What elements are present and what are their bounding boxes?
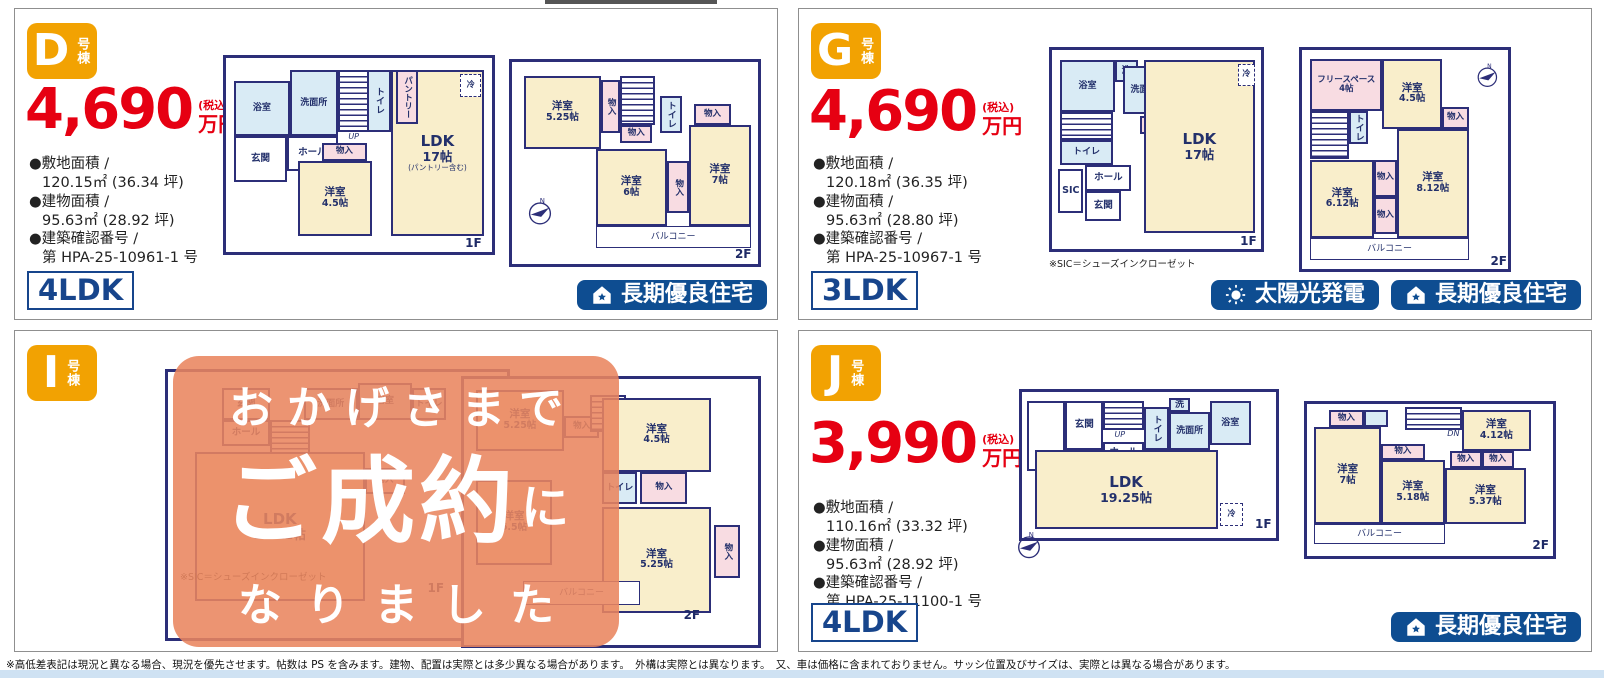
price-amount: 4,690 bbox=[25, 85, 192, 135]
room-appliance: 冷 bbox=[1238, 64, 1255, 86]
floorplan-2f: 洋室5.25帖物入DN物入トイレ物入洋室6帖物入洋室7帖バルコニーN2F bbox=[509, 59, 761, 267]
room-hall: 玄関 bbox=[1085, 191, 1121, 221]
panel-unit-g: G 号棟 4,690 (税込) 万円 ●敷地面積 / 120.18㎡ (36.3… bbox=[798, 8, 1592, 320]
room-room: 洋室5.18帖 bbox=[1381, 460, 1445, 524]
room-balcony: バルコニー bbox=[596, 226, 751, 248]
floorplan-1f: 浴室洗洗面所UPトイレ物入ホールSIC玄関LDK17帖冷1F bbox=[1049, 47, 1264, 252]
sold-overlay: おかげさまで ご成約 に なりました bbox=[173, 356, 619, 647]
unit-suffix: 号棟 bbox=[856, 37, 875, 65]
house-star-icon bbox=[1405, 284, 1427, 306]
room-stairs bbox=[1310, 111, 1349, 159]
room-wet: 洗面所 bbox=[290, 70, 338, 136]
floor-label: 1F bbox=[1238, 235, 1259, 249]
panel-unit-d: D 号棟 4,690 (税込) 万円 ●敷地面積 / 120.15㎡ (36.3… bbox=[14, 8, 778, 320]
spec-label: ●建物面積 / bbox=[29, 193, 198, 212]
room-room: 洋室6.12帖 bbox=[1310, 160, 1374, 239]
price-unit: 万円 bbox=[982, 115, 1022, 137]
room-appliance: 冷 bbox=[1220, 503, 1243, 526]
room-closet: 物入 bbox=[1329, 410, 1363, 427]
price: 4,690 (税込) 万円 bbox=[25, 85, 238, 135]
unit-badge-g: G 号棟 bbox=[811, 23, 881, 79]
room-stairs bbox=[1060, 112, 1112, 140]
spec-label: ●建築確認番号 / bbox=[813, 574, 982, 593]
unit-badge-i: I 号棟 bbox=[27, 345, 97, 401]
floor-label: 1F bbox=[1253, 518, 1273, 533]
unit-badge-j: J 号棟 bbox=[811, 345, 881, 401]
room-closet: 物入 bbox=[1381, 444, 1425, 461]
room-closet: 物入 bbox=[1450, 451, 1482, 468]
room-stairs bbox=[1103, 401, 1144, 430]
unit-suffix: 号棟 bbox=[62, 359, 81, 387]
room-room-lg: LDK17帖 bbox=[1144, 60, 1255, 233]
room-room: 洋室4.5帖 bbox=[298, 161, 372, 237]
spec-label: ●敷地面積 / bbox=[813, 155, 982, 174]
room-wet: 浴室 bbox=[234, 81, 290, 135]
room-appliance: 冷 bbox=[460, 74, 481, 97]
price-tax-note: (税込) bbox=[982, 99, 1014, 115]
spec-label: ●敷地面積 / bbox=[813, 499, 982, 518]
room-wet: トイレ bbox=[660, 96, 682, 132]
room-closet: パントリー bbox=[396, 70, 417, 124]
badge-label: 長期優良住宅 bbox=[1435, 616, 1567, 638]
floorplan-2f: 物入DN洋室4.12帖洋室7帖物入洋室5.18帖物入物入洋室5.37帖バルコニー… bbox=[1304, 401, 1556, 559]
spec-list: ●敷地面積 / 120.18㎡ (36.35 坪) ●建物面積 / 95.63㎡… bbox=[813, 155, 982, 268]
room-balcony: バルコニー bbox=[1314, 524, 1444, 544]
room-room: 洋室6帖 bbox=[596, 149, 667, 226]
panel-unit-i: I 号棟 玄関洗面所浴室トイレホールLDK20.12帖物入1F 洋室5.25帖物… bbox=[14, 330, 778, 652]
spec-label: ●建築確認番号 / bbox=[813, 230, 982, 249]
room-stairs bbox=[338, 70, 370, 132]
floorplan-1f: 玄関UPホールトイレ洗洗面所浴室LDK19.25帖冷1F bbox=[1019, 389, 1279, 541]
room-closet: 物入 bbox=[322, 143, 367, 160]
spec-label: ●建物面積 / bbox=[813, 537, 982, 556]
room-room: 洋室7帖 bbox=[689, 125, 751, 226]
spec-value: 95.63㎡ (28.92 坪) bbox=[29, 212, 198, 231]
room-hall: 玄関 bbox=[234, 136, 287, 183]
floor-label: 2F bbox=[1489, 254, 1508, 269]
room-closet: 物入 bbox=[601, 80, 621, 133]
price: 4,690 (税込) 万円 bbox=[809, 87, 1022, 137]
price-amount: 4,690 bbox=[809, 87, 976, 137]
badge-long-term-quality-housing: 長期優良住宅 bbox=[577, 280, 767, 310]
room-hall: SIC bbox=[1058, 169, 1083, 213]
room-closet: 物入 bbox=[620, 125, 652, 143]
floor-label: 2F bbox=[731, 248, 756, 262]
room-closet: 物入 bbox=[1374, 160, 1397, 197]
spec-value: 95.63㎡ (28.80 坪) bbox=[813, 212, 982, 231]
floorplan-2f: フリースペース4帖洋室4.5帖物入DNトイレ洋室6.12帖物入物入洋室8.12帖… bbox=[1299, 47, 1511, 272]
room-stairs bbox=[1405, 407, 1462, 430]
room-wet: トイレ bbox=[1144, 407, 1169, 451]
sold-text-line1: おかげさまで bbox=[215, 372, 577, 436]
room-wet bbox=[1364, 410, 1389, 427]
house-star-icon bbox=[591, 284, 613, 306]
spec-value: 第 HPA-25-10967-1 号 bbox=[813, 249, 982, 268]
badge-label: 長期優良住宅 bbox=[621, 284, 753, 306]
room-closet: 物入 bbox=[667, 161, 689, 214]
sun-icon bbox=[1225, 284, 1247, 306]
panel-unit-j: J 号棟 3,990 (税込) 万円 ●敷地面積 / 110.16㎡ (33.3… bbox=[798, 330, 1592, 652]
price-amount: 3,990 bbox=[809, 419, 976, 469]
spec-value: 120.18㎡ (36.35 坪) bbox=[813, 174, 982, 193]
room-room: 洋室8.12帖 bbox=[1397, 129, 1469, 239]
room-room: 洋室7帖 bbox=[1314, 427, 1380, 524]
room-wet: 洗 bbox=[1169, 398, 1189, 413]
compass-icon: N bbox=[524, 195, 556, 227]
badge-label: 太陽光発電 bbox=[1255, 284, 1365, 306]
layout-type-badge: 4LDK bbox=[27, 271, 134, 310]
floor-label: 2F bbox=[1531, 539, 1551, 553]
floor-label: 2F bbox=[679, 608, 705, 624]
spec-value: 120.15㎡ (36.34 坪) bbox=[29, 174, 198, 193]
price: 3,990 (税込) 万円 bbox=[809, 419, 1022, 469]
unit-letter: G bbox=[817, 29, 853, 73]
layout-type-badge: 4LDK bbox=[811, 603, 918, 642]
room-closet: 物入 bbox=[1442, 107, 1469, 129]
room-room: 洋室4.12帖 bbox=[1462, 410, 1531, 451]
room-wet: トイレ bbox=[1060, 140, 1112, 166]
room-room: 洋室5.37帖 bbox=[1445, 468, 1526, 524]
room-closet: 物入 bbox=[640, 472, 687, 504]
unit-letter: J bbox=[827, 351, 843, 395]
room-wet: トイレ bbox=[1349, 111, 1368, 144]
price-unit: 万円 bbox=[982, 447, 1022, 469]
spec-value: 第 HPA-25-10961-1 号 bbox=[29, 249, 198, 268]
spec-label: ●建物面積 / bbox=[813, 193, 982, 212]
unit-badge-d: D 号棟 bbox=[27, 23, 97, 79]
badge-solar-power: 太陽光発電 bbox=[1211, 280, 1379, 310]
room-hall: ホール bbox=[1085, 165, 1131, 191]
room-dir-label: UP bbox=[340, 132, 367, 144]
spec-value: 110.16㎡ (33.32 坪) bbox=[813, 518, 982, 537]
unit-letter: D bbox=[33, 29, 70, 73]
spec-label: ●建築確認番号 / bbox=[29, 230, 198, 249]
spec-label: ●敷地面積 / bbox=[29, 155, 198, 174]
room-wet: トイレ bbox=[367, 70, 391, 132]
badge-label: 長期優良住宅 bbox=[1435, 284, 1567, 306]
sold-text-particle: に bbox=[521, 468, 569, 538]
house-star-icon bbox=[1405, 616, 1427, 638]
room-wet: 浴室 bbox=[1060, 60, 1114, 112]
sold-text-main: ご成約 bbox=[223, 456, 517, 550]
room-stairs bbox=[620, 76, 654, 124]
room-room: 洋室4.5帖 bbox=[1382, 59, 1442, 129]
sic-note: ※SIC＝シューズインクローゼット bbox=[1049, 256, 1195, 270]
layout-type-badge: 3LDK bbox=[811, 271, 918, 310]
room-closet: 物入 bbox=[1374, 197, 1397, 234]
compass-icon: N bbox=[1015, 529, 1043, 561]
unit-letter: I bbox=[43, 351, 59, 395]
room-closet: フリースペース4帖 bbox=[1310, 59, 1382, 112]
top-crop-artifact bbox=[545, 0, 717, 4]
spec-value: 95.63㎡ (28.92 坪) bbox=[813, 556, 982, 575]
compass-icon: N bbox=[1475, 61, 1500, 89]
sold-text-line2: ご成約 に bbox=[223, 456, 569, 550]
room-wet: 浴室 bbox=[1210, 401, 1251, 445]
room-room: 洋室5.25帖 bbox=[524, 76, 600, 149]
floor-label: 1F bbox=[460, 236, 487, 250]
room-dir-label: UP bbox=[1108, 430, 1131, 442]
room-balcony: バルコニー bbox=[1310, 238, 1469, 260]
floorplan-1f: 浴室洗面所UPトイレLDK17帖(パントリー含む)パントリー冷玄関ホール物入洋室… bbox=[223, 55, 495, 255]
room-hall: 玄関 bbox=[1065, 401, 1103, 451]
bottom-strip bbox=[0, 670, 1604, 678]
spec-list: ●敷地面積 / 110.16㎡ (33.32 坪) ●建物面積 / 95.63㎡… bbox=[813, 499, 982, 612]
room-room-lg: LDK19.25帖 bbox=[1035, 450, 1218, 529]
badge-long-term-quality-housing: 長期優良住宅 bbox=[1391, 280, 1581, 310]
spec-list: ●敷地面積 / 120.15㎡ (36.34 坪) ●建物面積 / 95.63㎡… bbox=[29, 155, 198, 268]
room-closet: 物入 bbox=[694, 104, 731, 124]
badge-long-term-quality-housing: 長期優良住宅 bbox=[1391, 612, 1581, 642]
sold-text-line3: なりました bbox=[214, 569, 578, 633]
room-closet: 物入 bbox=[1482, 451, 1514, 468]
room-wet: 洗面所 bbox=[1169, 412, 1210, 450]
room-closet: 物入 bbox=[714, 525, 740, 578]
unit-suffix: 号棟 bbox=[846, 359, 865, 387]
price-tax-note: (税込) bbox=[982, 431, 1014, 447]
unit-suffix: 号棟 bbox=[72, 37, 91, 65]
